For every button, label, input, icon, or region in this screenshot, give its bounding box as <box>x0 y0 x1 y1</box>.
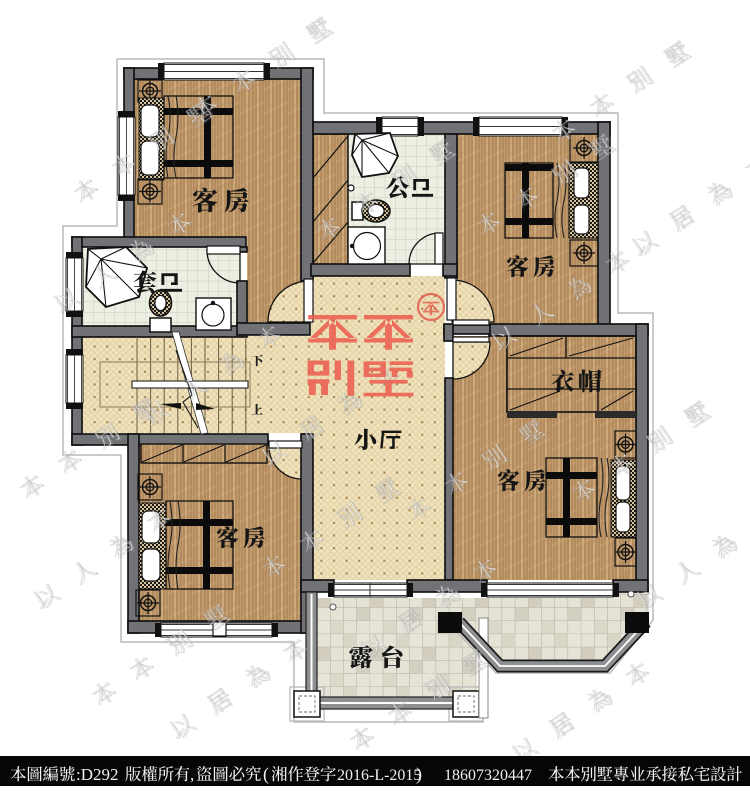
svg-text:2016-L-2015: 2016-L-2015 <box>337 767 421 784</box>
svg-text:(: ( <box>263 764 269 785</box>
svg-text:18607320447: 18607320447 <box>444 767 532 784</box>
svg-text:,: , <box>190 765 194 784</box>
svg-text::D292: :D292 <box>76 765 119 784</box>
svg-text:): ) <box>416 764 422 785</box>
